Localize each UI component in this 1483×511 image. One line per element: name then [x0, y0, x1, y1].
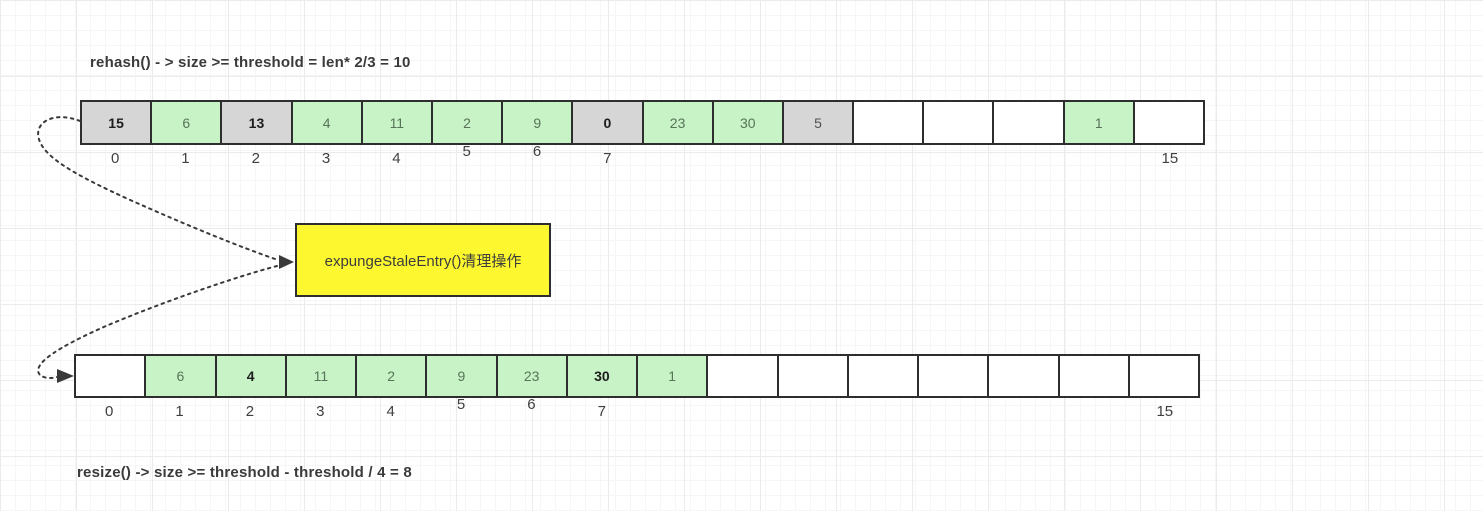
index-label — [1059, 403, 1129, 421]
index-label: 2 — [215, 403, 285, 421]
array-cell — [1128, 356, 1198, 396]
index-label: 7 — [572, 150, 642, 168]
index-label — [643, 150, 713, 168]
index-label — [1064, 150, 1134, 168]
index-label: 4 — [361, 150, 431, 168]
array-cell — [777, 356, 847, 396]
arrowhead-icon — [279, 255, 294, 269]
top-array-index-labels: 0123456715 — [80, 150, 1205, 168]
index-label — [778, 403, 848, 421]
array-cell: 1 — [1063, 102, 1133, 143]
array-cell: 0 — [571, 102, 641, 143]
resize-title: resize() -> size >= threshold - threshol… — [77, 464, 412, 481]
rehash-title: rehash() - > size >= threshold = len* 2/… — [90, 54, 411, 71]
index-label: 7 — [567, 403, 637, 421]
index-label — [853, 150, 923, 168]
index-label: 0 — [80, 150, 150, 168]
index-label: 15 — [1130, 403, 1200, 421]
array-cell — [852, 102, 922, 143]
array-cell — [706, 356, 776, 396]
index-label: 0 — [74, 403, 144, 421]
top-hash-array: 15613411290233051 — [80, 100, 1205, 145]
array-cell: 2 — [431, 102, 501, 143]
arrowhead-icon — [57, 369, 74, 383]
index-label — [924, 150, 994, 168]
bottom-array-index-labels: 0123456715 — [74, 403, 1200, 421]
index-label: 4 — [356, 403, 426, 421]
array-cell: 6 — [144, 356, 214, 396]
index-label: 1 — [144, 403, 214, 421]
array-cell: 23 — [642, 102, 712, 143]
index-label — [637, 403, 707, 421]
array-cell: 30 — [712, 102, 782, 143]
array-cell — [76, 356, 144, 396]
index-label — [707, 403, 777, 421]
array-cell — [847, 356, 917, 396]
array-cell: 9 — [501, 102, 571, 143]
array-cell: 15 — [82, 102, 150, 143]
array-cell: 2 — [355, 356, 425, 396]
array-cell: 9 — [425, 356, 495, 396]
array-cell: 30 — [566, 356, 636, 396]
index-label: 2 — [221, 150, 291, 168]
array-cell: 13 — [220, 102, 290, 143]
index-label: 1 — [150, 150, 220, 168]
index-label: 5 — [426, 396, 496, 414]
index-label — [994, 150, 1064, 168]
array-cell: 4 — [215, 356, 285, 396]
array-cell: 11 — [285, 356, 355, 396]
index-label: 6 — [496, 396, 566, 414]
flow-arrows — [0, 0, 1483, 511]
array-cell: 6 — [150, 102, 220, 143]
index-label: 3 — [291, 150, 361, 168]
index-label — [848, 403, 918, 421]
index-label: 5 — [432, 143, 502, 161]
array-cell: 11 — [361, 102, 431, 143]
array-cell — [922, 102, 992, 143]
array-cell: 4 — [291, 102, 361, 143]
array-cell — [917, 356, 987, 396]
array-cell: 1 — [636, 356, 706, 396]
index-label — [989, 403, 1059, 421]
array-cell: 23 — [496, 356, 566, 396]
index-label: 6 — [502, 143, 572, 161]
expunge-stale-entry-box: expungeStaleEntry()清理操作 — [295, 223, 551, 297]
diagram-canvas: rehash() - > size >= threshold = len* 2/… — [0, 0, 1483, 511]
index-label: 3 — [285, 403, 355, 421]
array-cell: 5 — [782, 102, 852, 143]
array-cell — [992, 102, 1062, 143]
index-label — [783, 150, 853, 168]
bottom-hash-array: 64112923301 — [74, 354, 1200, 398]
array-cell — [987, 356, 1057, 396]
array-cell — [1058, 356, 1128, 396]
index-label — [919, 403, 989, 421]
index-label: 15 — [1135, 150, 1205, 168]
array-cell — [1133, 102, 1203, 143]
index-label — [713, 150, 783, 168]
